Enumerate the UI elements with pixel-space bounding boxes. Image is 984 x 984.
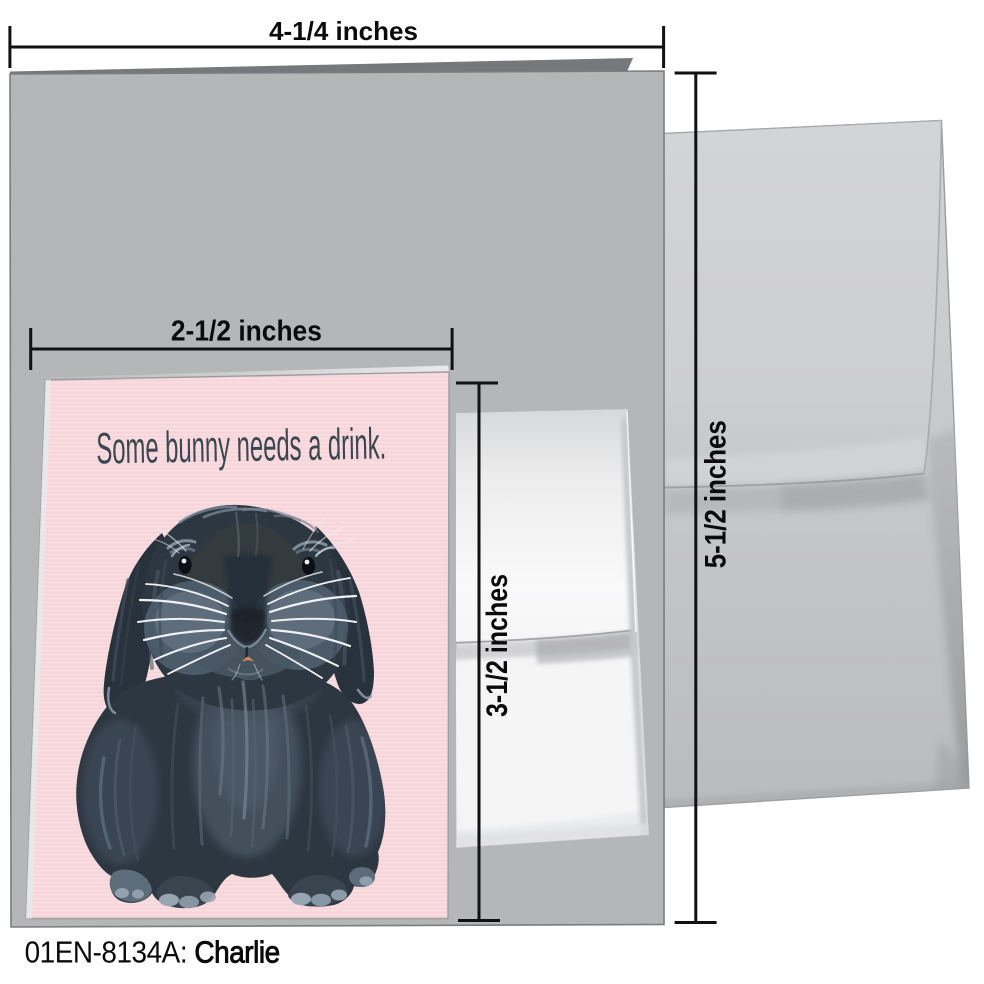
svg-text:01EN-8134A: Charlie: 01EN-8134A: Charlie [25,935,280,970]
svg-text:2-1/2 inches: 2-1/2 inches [171,315,322,347]
svg-text:4-1/4 inches: 4-1/4 inches [269,16,418,46]
svg-text:3-1/2 inches: 3-1/2 inches [481,574,514,717]
svg-text:Some bunny needs a drink.: Some bunny needs a drink. [96,419,387,474]
svg-text:5-1/2 inches: 5-1/2 inches [700,420,733,568]
